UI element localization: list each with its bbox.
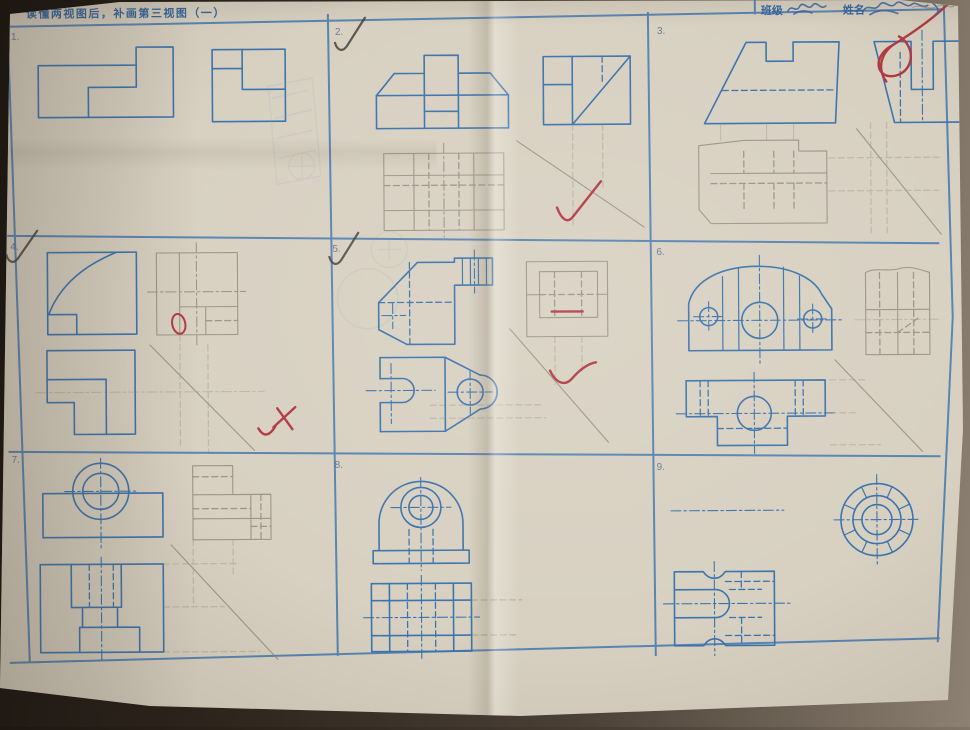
paper-tilt-wrapper: 读懂两视图后，补画第三视图（一） 班级 姓名 1. 2. 3. 4. 5. 6.… (0, 0, 970, 730)
cell-6-top-view (676, 372, 834, 454)
cell-6-drawing (675, 254, 940, 454)
cell-2-red-check-mark (557, 181, 601, 220)
problem-number-4: 4. (10, 242, 18, 253)
worksheet-drawing-layer (0, 0, 970, 730)
cell-3-penciled-third-view (699, 122, 942, 235)
cell-5-ghost-circle (371, 231, 407, 267)
cell-4-front-view (47, 252, 136, 335)
cell-2-penciled-third-view (384, 124, 645, 238)
name-label: 姓名 (843, 2, 865, 18)
cell-6-front-view (677, 255, 842, 364)
cell-9-drawing (663, 474, 921, 656)
handwritten-name-value (863, 2, 938, 15)
cell-7-front-view (43, 458, 164, 550)
cell-9-centerline (671, 510, 784, 511)
cell-5-drawing (365, 230, 608, 443)
pencil-check-marks (5, 18, 366, 266)
cell-5-top-view (366, 357, 497, 432)
worksheet-paper: 读懂两视图后，补画第三视图（一） 班级 姓名 1. 2. 3. 4. 5. 6.… (0, 0, 970, 727)
problem-number-5: 5. (332, 244, 340, 255)
cell-9-flange-view (834, 474, 921, 565)
cell-2-front-view (376, 55, 508, 129)
problem-number-6: 6. (656, 247, 664, 258)
cell-5-penciled-third-view (429, 261, 608, 443)
problem-number-2: 2. (335, 27, 343, 38)
cell-5-front-view (378, 250, 493, 345)
cell-2-drawing (336, 54, 645, 329)
cell-3-drawing (698, 30, 963, 236)
cell-7-penciled-third-view (163, 465, 278, 660)
worksheet-title: 读懂两视图后，补画第三视图（一） (26, 4, 326, 22)
problem-number-1: 1. (11, 32, 19, 43)
cell-7-drawing (40, 457, 278, 660)
problem-number-7: 7. (12, 455, 20, 466)
cell-4-red-oval-mark (170, 313, 187, 335)
cell-1-drawing (38, 46, 321, 186)
cell-8-drawing (363, 477, 522, 659)
cell-8-front-view (373, 477, 470, 571)
cell-4-penciled-third-view (35, 242, 264, 452)
problem-number-8: 8. (335, 460, 343, 471)
cell-3-front-view (704, 42, 839, 124)
cell-4-red-cross-mark (258, 407, 295, 434)
problem-number-3: 3. (657, 26, 665, 37)
class-label: 班级 (761, 2, 783, 18)
cell-8-top-view (363, 575, 480, 659)
cell-7-top-view (40, 557, 164, 661)
cell-1-front-view (38, 47, 173, 118)
cell-4-drawing (35, 242, 295, 453)
problem-number-9: 9. (657, 462, 665, 473)
cell-2-ghost-circle (337, 269, 397, 329)
cell-2-side-view (543, 56, 630, 125)
photographed-worksheet: 读懂两视图后，补画第三视图（一） 班级 姓名 1. 2. 3. 4. 5. 6.… (0, 0, 970, 727)
cell-5-red-marks (550, 311, 596, 383)
cell-6-penciled-third-view (829, 267, 940, 452)
cell-1-bleedthrough-ghost (268, 78, 321, 184)
